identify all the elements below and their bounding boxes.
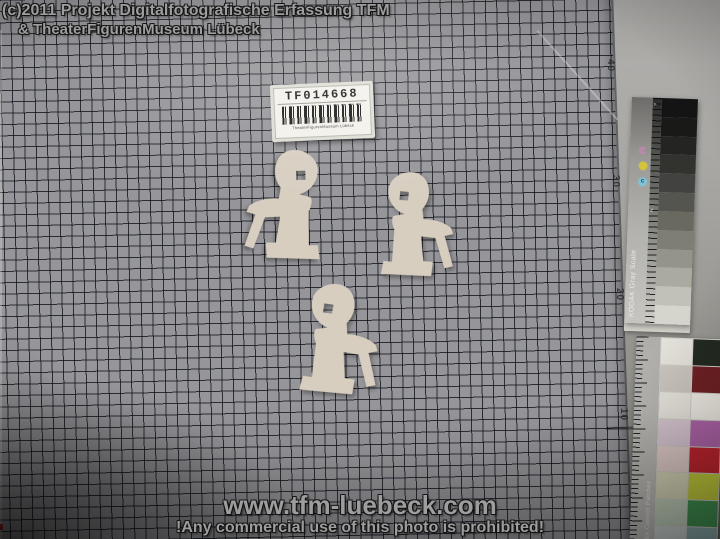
- gray-step-11: [654, 305, 691, 325]
- copyright-line2: & TheaterFigurenMuseum Lübeck: [18, 20, 390, 39]
- patch-color-brown: [691, 366, 720, 393]
- patch-color-red: [688, 447, 719, 474]
- website-watermark: www.tfm-luebeck.com: [0, 491, 720, 519]
- paper-left-edge: [0, 30, 2, 539]
- kodak-gray-scale: M C KODAK Gray Scale A M: [624, 97, 698, 325]
- color-patch-black: [661, 338, 720, 366]
- patch-tint-red: [657, 446, 688, 473]
- ruler-number-30: 30: [610, 175, 621, 188]
- magenta-letter: M: [637, 146, 647, 154]
- ruler-number-20: 20: [614, 288, 625, 301]
- patch-tint-brown: [660, 365, 691, 392]
- patch-tint-black: [661, 338, 692, 365]
- gray-step-8: [656, 249, 693, 269]
- color-patch-magenta: [658, 419, 720, 447]
- bottom-watermark: www.tfm-luebeck.com !Any commercial use …: [0, 491, 720, 536]
- ruler-number-40: 40: [605, 59, 616, 72]
- inventory-number: TF014668: [277, 86, 367, 105]
- cyan-dot: C: [638, 177, 647, 186]
- paper-chair-figure-2: [371, 169, 465, 285]
- copyright-watermark: (c)2011 Projekt Digitalfotografische Erf…: [2, 1, 390, 39]
- calibration-strips: M C KODAK Gray Scale A M KODAK Color Con…: [615, 97, 720, 539]
- patch-color-black: [692, 339, 720, 366]
- patch-color-white: [690, 393, 720, 420]
- gray-step-4: [659, 173, 696, 193]
- gray-step-6: [657, 211, 694, 231]
- museum-photo: 40302010 TF014668 TheaterFigurenMuseum L…: [0, 0, 720, 539]
- gray-step-9: [655, 267, 692, 287]
- color-patch-white: [659, 392, 720, 420]
- color-patch-brown: [660, 365, 720, 393]
- gray-step-3: [659, 154, 696, 174]
- patch-color-magenta: [689, 420, 720, 447]
- inventory-label: TF014668 TheaterFigurenMuseum Lübeck: [270, 81, 375, 142]
- gray-step-0: [661, 98, 698, 118]
- gray-scale-title: KODAK Gray Scale: [628, 189, 639, 317]
- barcode: [282, 103, 364, 125]
- prohibition-watermark: !Any commercial use of this photo is pro…: [0, 519, 720, 536]
- paper-chair-figure-1: [232, 143, 336, 271]
- gray-step-5: [658, 192, 695, 212]
- gray-step-10: [655, 286, 692, 306]
- gray-step-7: [657, 230, 694, 250]
- gray-scale-marker-m: M: [649, 208, 654, 212]
- yellow-dot: [638, 161, 647, 170]
- paper-chair-figure-3: [291, 280, 391, 403]
- color-patch-red: [657, 446, 720, 474]
- patch-tint-magenta: [658, 419, 689, 446]
- patch-tint-white: [659, 392, 690, 419]
- gray-step-1: [661, 117, 698, 137]
- gray-scale-marker-a: A: [653, 103, 658, 106]
- gray-step-2: [660, 136, 697, 156]
- inventory-label-inner: TF014668 TheaterFigurenMuseum Lübeck: [273, 84, 372, 139]
- copyright-line1: (c)2011 Projekt Digitalfotografische Erf…: [2, 1, 390, 20]
